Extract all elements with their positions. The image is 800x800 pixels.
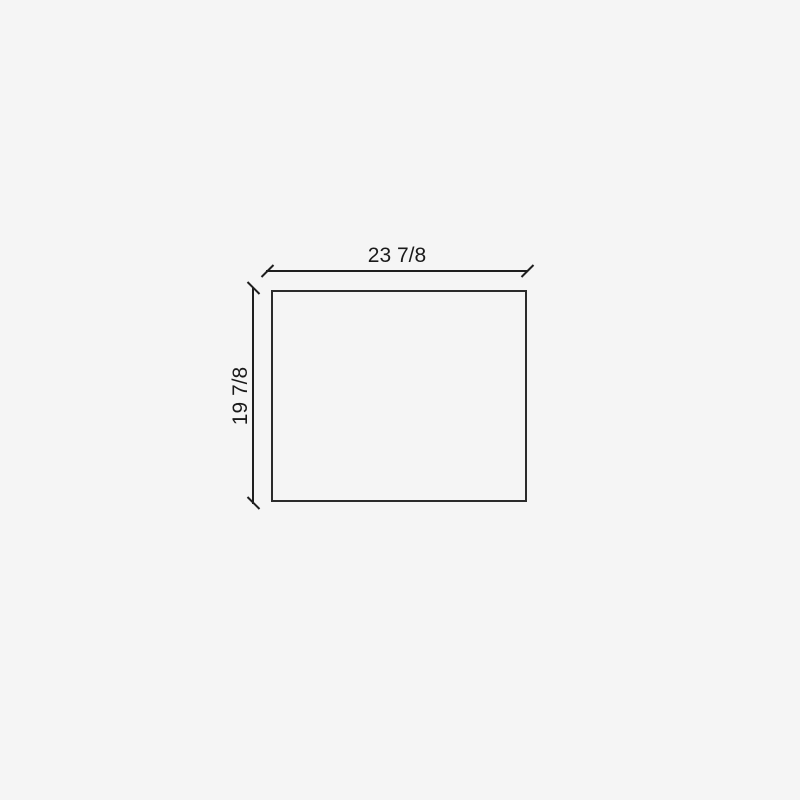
rectangle-outline — [271, 290, 527, 502]
height-dimension-label: 19 7/8 — [230, 367, 252, 425]
height-dimension-line — [252, 287, 254, 504]
width-dimension-line — [266, 270, 528, 272]
width-dimension-label: 23 7/8 — [266, 245, 528, 267]
drawing-canvas: 23 7/8 19 7/8 — [0, 0, 800, 800]
